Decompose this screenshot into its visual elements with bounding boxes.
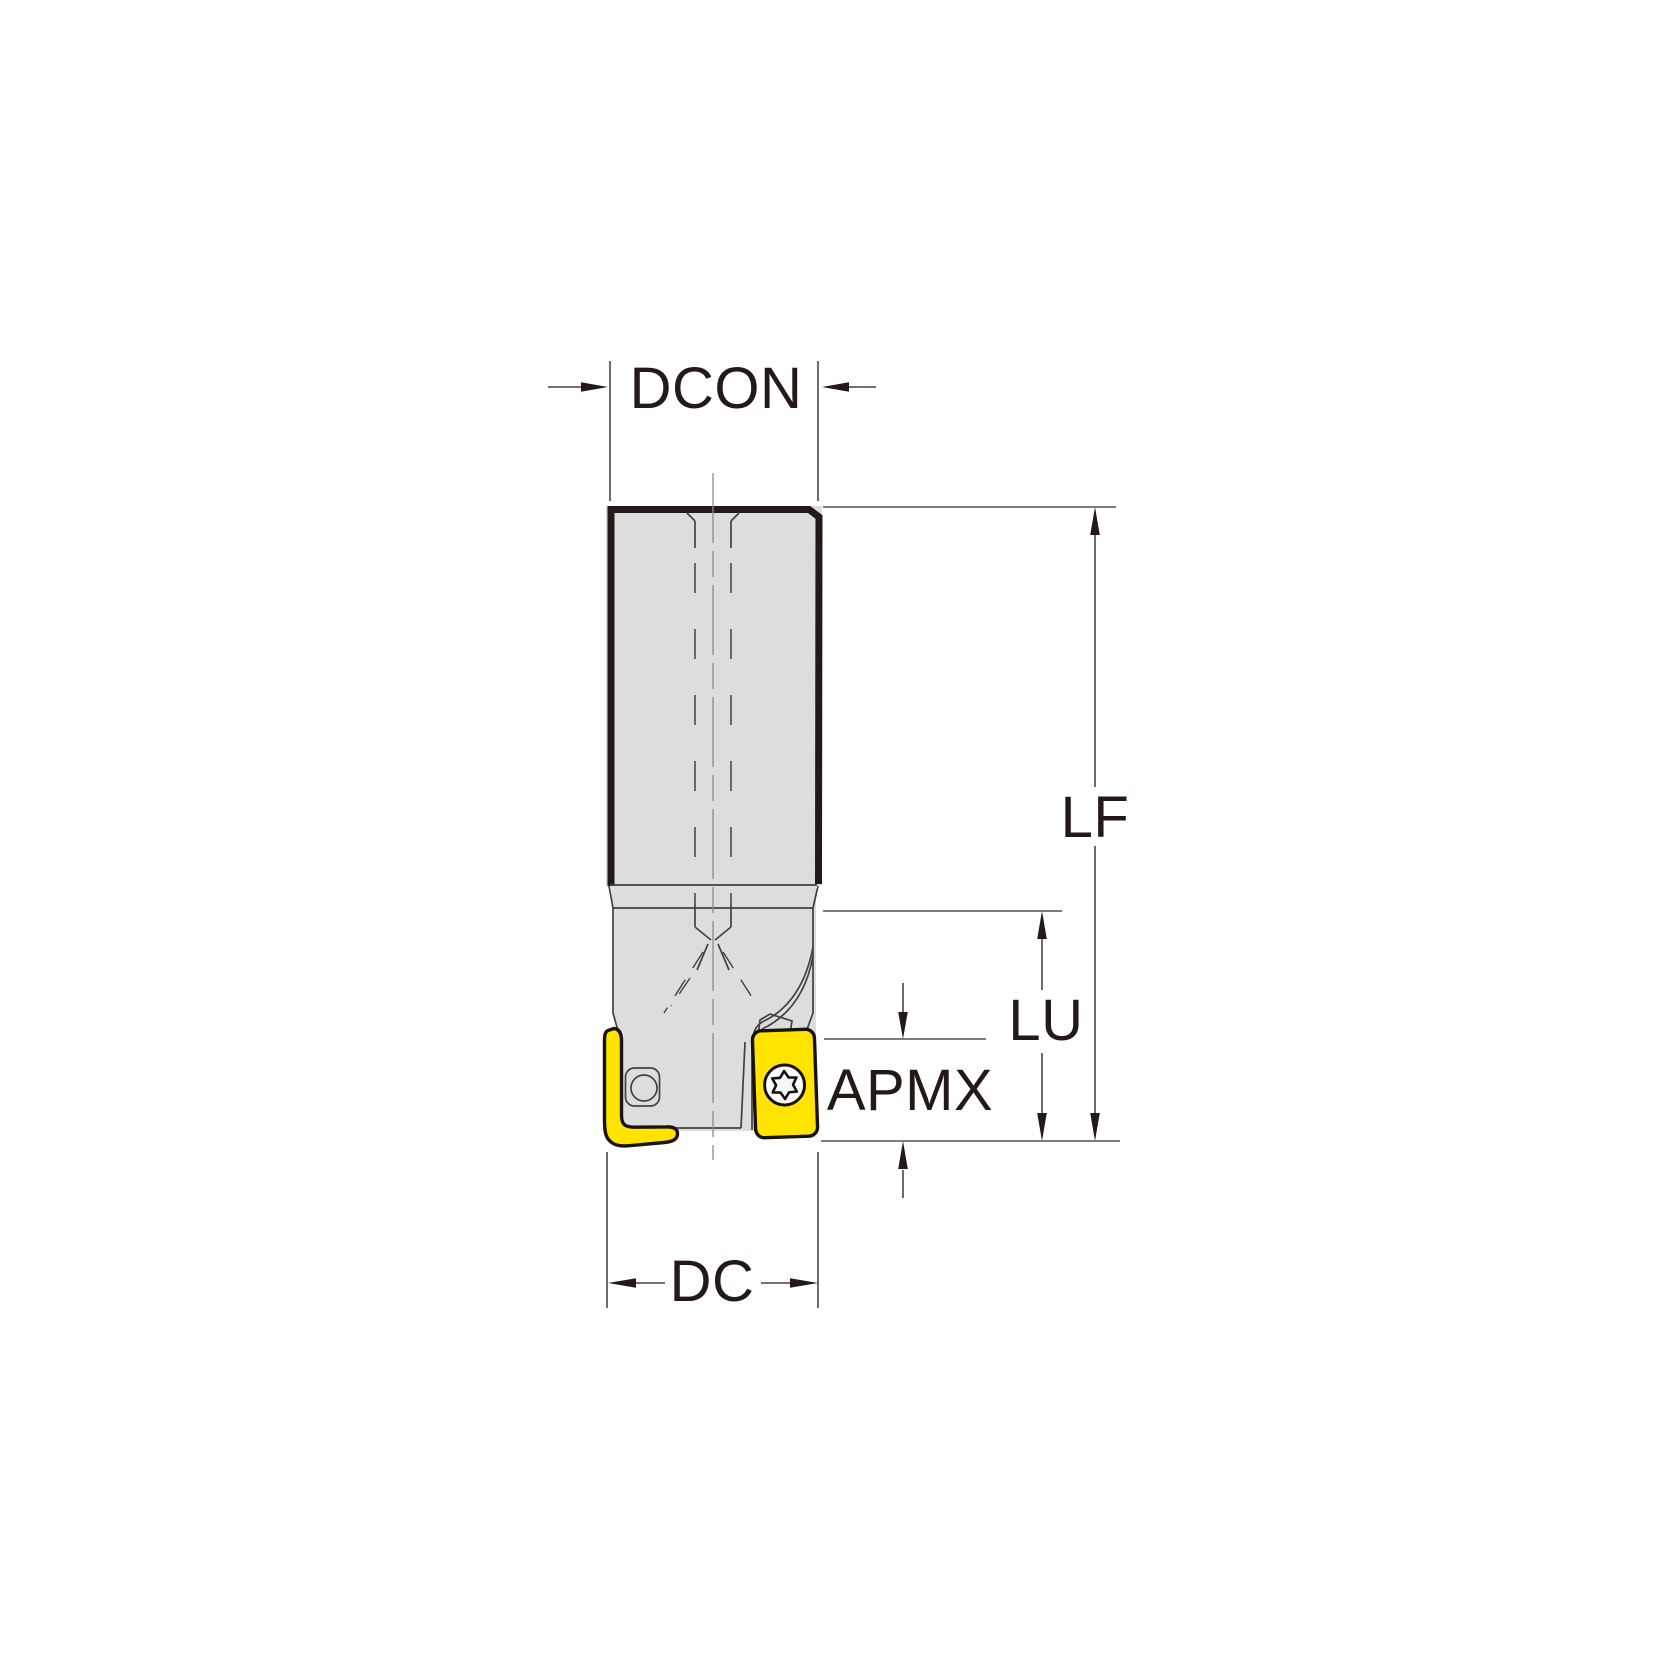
shank — [606, 506, 822, 886]
dimension-dcon: DCON — [548, 356, 876, 501]
lu-label: LU — [1008, 988, 1083, 1053]
lf-arrowhead-down — [1090, 1113, 1100, 1141]
technical-drawing-canvas: DCON LF LU APMX DC — [0, 0, 1680, 1680]
dcon-arrowhead-right — [822, 382, 849, 392]
lf-label: LF — [1061, 785, 1130, 850]
lf-arrowhead-up — [1090, 507, 1100, 535]
dc-label: DC — [670, 1249, 755, 1314]
lu-arrowhead-up — [1037, 911, 1047, 939]
dimension-dc: DC — [607, 1152, 818, 1314]
end-mill-diagram: DCON LF LU APMX DC — [0, 0, 1680, 1680]
dc-arrowhead-right — [790, 1278, 818, 1288]
dc-arrowhead-left — [608, 1278, 636, 1288]
apmx-arrowhead-down — [898, 1012, 908, 1039]
apmx-label: APMX — [827, 1058, 993, 1123]
apmx-arrowhead-up — [898, 1141, 908, 1169]
dcon-arrowhead-left — [581, 382, 608, 392]
dcon-label: DCON — [630, 356, 803, 421]
lu-arrowhead-down — [1037, 1113, 1047, 1141]
right-insert-group — [752, 1029, 818, 1138]
